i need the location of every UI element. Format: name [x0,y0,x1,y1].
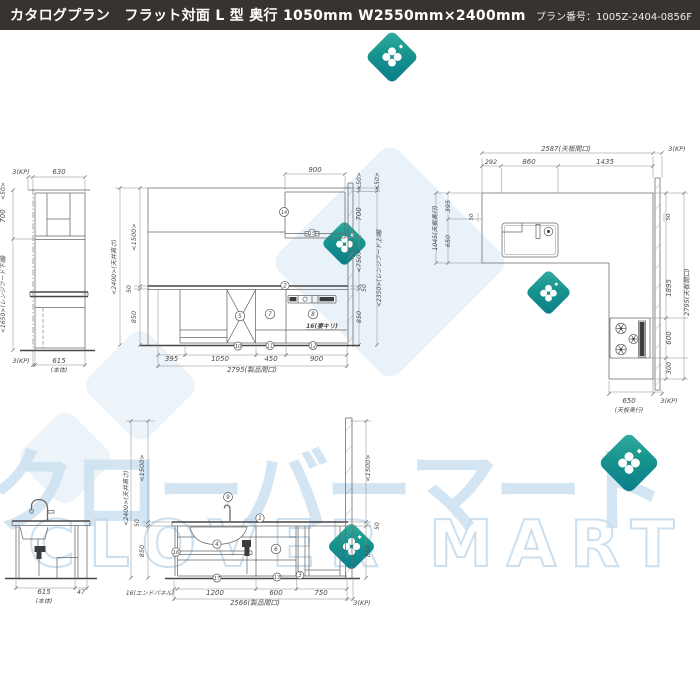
dim-label: 2587(天板間口) [541,145,591,153]
dim-label: 860 [522,158,536,166]
callout-2: 2 [281,281,289,289]
dim-label: 16(妻キリ) [306,322,338,330]
back-elevation [126,418,371,601]
drain-trap [242,540,251,547]
grill-slot [640,322,645,356]
svg-text:3: 3 [298,573,302,579]
svg-text:10: 10 [235,344,241,350]
dim-label: 750 [314,589,328,597]
dim-label: 395 [165,355,179,363]
dim-label: 3(KP) [12,357,29,365]
dim-label: 2795(天板間口) [683,268,691,316]
gooseneck-faucet [30,499,55,521]
dim-label: 3(KP) [668,145,685,153]
dim-label: (本体) [51,366,68,374]
dim-label: 2795(製品間口) [227,366,277,374]
dim-label: <1500> [364,454,372,481]
dim-label: 650 [444,235,452,247]
dim-label: 3(KP) [660,397,677,405]
dim-label: <50> [356,172,363,190]
dim-label: 900 [310,355,324,363]
dim-label: 850 [130,311,138,323]
dim-label: 700 [0,209,7,223]
callout-11: 11 [266,342,274,350]
callout-3: 3 [296,571,304,579]
page-title: カタログプラン フラット対面 L 型 奥行 1050mm W2550mm×240… [0,5,526,25]
dim-label: <1500> [138,454,146,481]
dim-label: 700 [355,207,363,221]
dim-label: 395 [444,200,452,212]
svg-text:12: 12 [310,343,316,349]
dim-label: 630 [52,168,66,176]
dim-label: 50 [374,522,381,530]
dim-label: <750> [355,249,363,272]
svg-text:9: 9 [226,495,230,501]
svg-text:4: 4 [215,542,219,548]
dim-label: <1650>(レンジフード下端) [0,255,7,333]
dim-label: 50 [469,213,475,220]
dim-label: 50 [134,519,141,527]
svg-text:14: 14 [281,210,287,216]
dim-label: 1045(天板奥行) [431,205,439,250]
drain-trap [35,546,46,559]
callout-9: 9 [224,493,233,502]
dim-label: 650 [622,397,636,405]
callout-5: 5 [235,311,245,321]
dim-label: <50> [374,172,381,190]
dim-label: 47 [77,588,86,596]
callout-16: 16 [172,548,180,556]
svg-text:6: 6 [274,547,278,553]
dim-label: 292 [485,158,497,166]
dim-label: <50> [0,182,7,200]
svg-text:7: 7 [268,312,272,318]
svg-text:15: 15 [309,231,315,237]
dim-label: 900 [308,166,322,174]
plan-number: プラン番号：1005Z-2404-0856F [536,8,700,23]
dim-label: 615 [52,357,66,365]
dim-label: 2566(製品間口) [230,599,280,607]
svg-text:13: 13 [274,575,280,581]
dim-label: <2350>(レンジフード上端) [375,229,383,307]
dim-label: 1050 [211,355,229,363]
svg-text:1: 1 [258,516,262,522]
dim-label: 850 [364,545,372,557]
dim-label: 16(エンドパネル) [126,590,174,597]
svg-text:17: 17 [214,576,221,582]
callout-13: 13 [273,573,281,581]
towel-bar [177,551,252,555]
svg-text:5: 5 [238,314,242,320]
callout-6: 6 [271,544,281,554]
svg-text:16: 16 [173,550,179,556]
dim-label: 1435 [596,158,614,166]
callout-12: 12 [309,342,317,350]
dim-label: 600 [665,331,673,345]
dim-label: 3(KP) [12,168,29,176]
end-panel-hatched [348,183,353,347]
faucet-back-view [225,505,231,522]
dim-label: <2400>(天井高さ) [122,470,130,526]
dim-label: 850 [138,545,146,557]
callout-4: 4 [213,540,221,548]
dim-label: 615 [37,588,51,596]
callout-1: 1 [256,514,264,522]
callout-15: 15 [308,229,316,237]
svg-text:8: 8 [311,312,315,318]
dim-label: 600 [269,589,283,597]
dim-label: 3(KP) [353,599,370,607]
side-elevation-tall-unit [13,177,95,367]
dim-label: (本体) [36,597,53,605]
cooktop-control-panel [288,296,336,304]
callout-14: 14 [280,208,289,217]
dim-label: 50 [126,285,133,293]
dim-label: 300 [665,362,673,374]
faucet-lever-plan [536,225,540,239]
dim-label: 850 [355,311,363,323]
sink-plan [502,223,558,257]
callout-17: 17 [213,574,221,582]
callout-7: 7 [265,309,275,319]
tall-wall-panel [346,418,353,578]
svg-text:2: 2 [283,283,287,289]
svg-text:11: 11 [267,343,273,349]
dim-label: <1500> [130,223,138,250]
dim-label: <2400>(天井高さ) [110,239,118,295]
callout-10: 10 [234,342,242,350]
cooktop-plan [610,318,650,358]
callout-8: 8 [308,309,318,319]
dim-label: 1895 [665,279,673,297]
catalog-plan-page: クローバーマート CLOVER MART カタログプラン フラット対面 L 型 … [0,0,700,700]
dim-label: (天板奥行) [615,406,644,414]
dim-label: 50 [361,284,368,292]
header-bar: カタログプラン フラット対面 L 型 奥行 1050mm W2550mm×240… [0,0,700,30]
dim-label: 50 [666,213,672,220]
kitchen-plan-drawing: 3(KP)630<50>700<1650>(レンジフード下端)3(KP)615(… [0,0,700,700]
plan-view [436,153,688,394]
front-elevation [140,174,380,368]
sink-section-view [5,499,97,590]
dim-label: 1200 [206,589,224,597]
dim-label: 450 [264,355,278,363]
